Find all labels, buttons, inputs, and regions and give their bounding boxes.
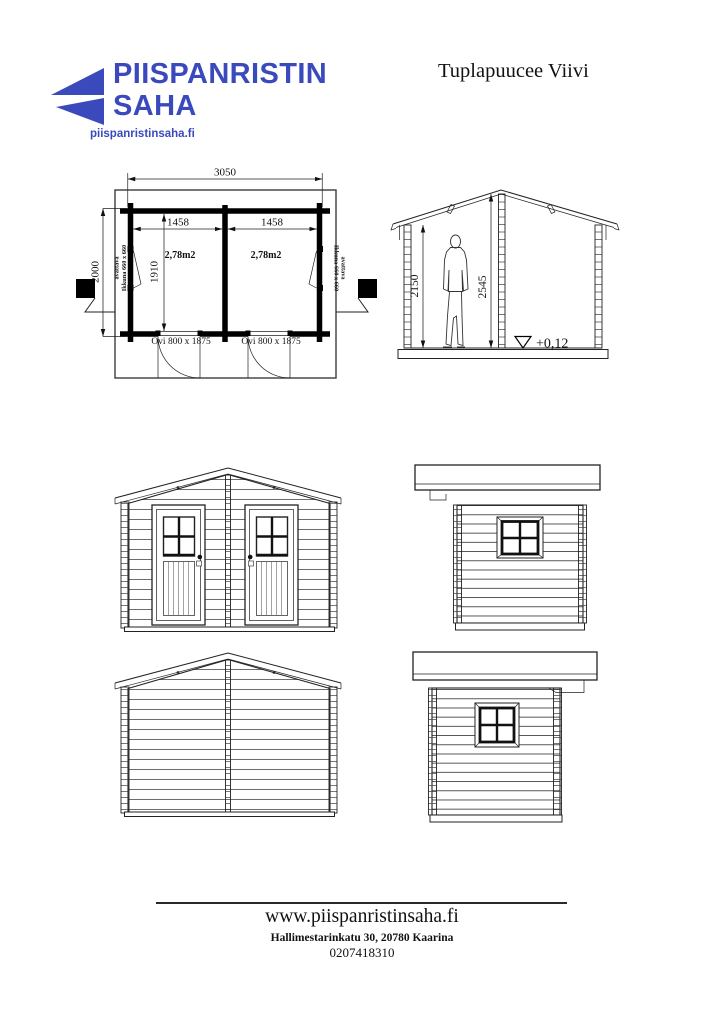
corner-logs-right	[554, 688, 562, 815]
footer-phone: 0207418310	[0, 945, 724, 961]
corner-logs-right	[329, 502, 337, 628]
side1-window	[497, 517, 543, 558]
floor-level-value: +0,12	[536, 337, 568, 352]
side2-roof	[413, 652, 597, 680]
footer-divider	[156, 902, 567, 904]
side2-base	[430, 815, 562, 822]
side-elevation-left-drawing	[413, 652, 597, 822]
side1-roof	[415, 465, 600, 490]
level-marker-icon	[515, 337, 531, 349]
corner-logs-right	[579, 505, 587, 623]
side1-base	[456, 623, 585, 630]
dim-3050: 3050	[214, 167, 237, 179]
room-area-right: 2,78m2	[251, 250, 282, 261]
corner-logs-left	[429, 688, 437, 815]
footer-address: Hallimestarinkatu 30, 20780 Kaarina	[0, 932, 724, 944]
window-label-right-1: Ikkuna 660 x 660	[333, 245, 340, 291]
front-door-left	[152, 505, 205, 625]
window-label-left-1: Ikkuna 660 x 660	[121, 245, 128, 291]
window-label-right-2: avattava	[340, 256, 347, 280]
side2-window	[475, 703, 519, 747]
plan-sheet-page: PIISPANRISTIN SAHA piispanristinsaha.fi …	[0, 0, 724, 1024]
side1-eave-bracket	[430, 490, 446, 500]
center-joint-strip	[226, 660, 231, 813]
section-foundation	[398, 350, 608, 359]
corner-logs-left	[454, 505, 462, 623]
front-base	[125, 627, 335, 632]
dim-1910: 1910	[149, 261, 161, 284]
front-elevation-drawing	[115, 468, 341, 632]
door-handle	[248, 555, 253, 560]
dim-2545: 2545	[477, 275, 489, 298]
floor-plan-drawing: 3050 1458 1458 2000 1910 2,78m2 2,78m2 O…	[76, 167, 377, 379]
window-label-left-2: avattava	[114, 256, 121, 280]
door-handle	[198, 555, 203, 560]
dim-2150: 2150	[409, 274, 421, 297]
door-label-right: Ovi 800 x 1875	[241, 337, 301, 347]
section-wall-right	[595, 225, 602, 348]
dim-1458-right: 1458	[261, 217, 284, 229]
drawing-sheet: 3050 1458 1458 2000 1910 2,78m2 2,78m2 O…	[0, 0, 724, 1024]
back-base	[125, 812, 335, 817]
section-drawing: 2150 2545 +0,12	[391, 190, 619, 359]
back-elevation-drawing	[115, 653, 341, 817]
footer-website: www.piispanristinsaha.fi	[0, 906, 724, 928]
side-elevation-right-drawing	[415, 465, 600, 630]
center-joint-strip	[226, 475, 231, 628]
section-wall-middle	[499, 194, 506, 348]
human-figure	[443, 235, 468, 347]
marker-square-right	[358, 279, 377, 298]
door-label-left: Ovi 800 x 1875	[151, 337, 211, 347]
room-area-left: 2,78m2	[165, 250, 196, 261]
corner-logs-left	[121, 687, 129, 813]
corner-logs-right	[329, 687, 337, 813]
marker-square-left	[76, 279, 95, 298]
corner-logs-left	[121, 502, 129, 628]
dim-1458-left: 1458	[167, 217, 190, 229]
front-door-right	[245, 505, 298, 625]
